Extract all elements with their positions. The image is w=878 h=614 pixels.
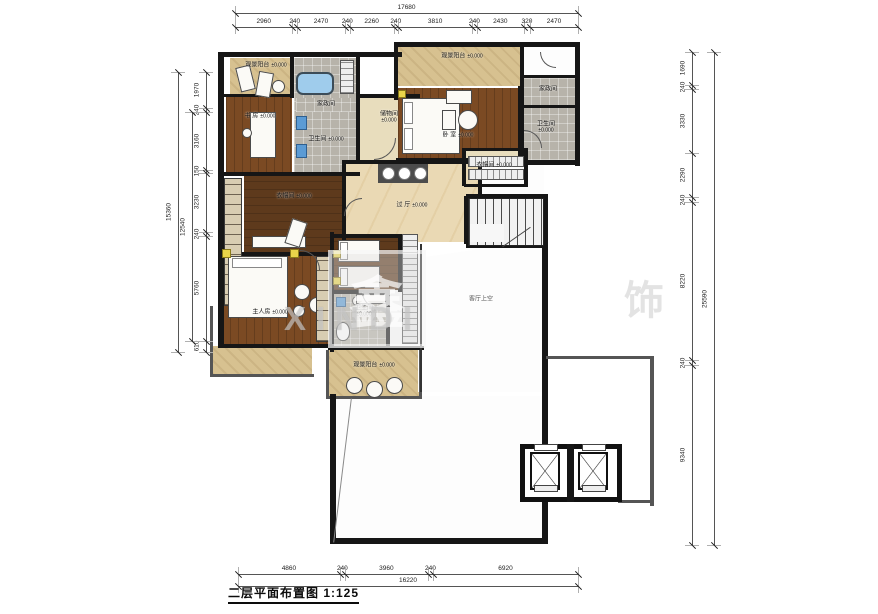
dimension-label: 16220 xyxy=(399,577,417,584)
round-furniture xyxy=(366,381,383,398)
round-furniture xyxy=(294,284,310,300)
void-living-room xyxy=(418,240,543,392)
elevator-divider-wall xyxy=(567,444,574,502)
room-label-storage: 储物间±0.000 xyxy=(380,112,398,125)
furniture-rect xyxy=(442,110,456,130)
dimension-label: 1690 xyxy=(680,61,687,75)
nightstand-icon xyxy=(222,249,231,258)
room-label-laundry-top: 家政间 xyxy=(317,102,335,109)
wall xyxy=(520,160,580,165)
room-balcony-bottom-left xyxy=(212,346,312,374)
room-name-text: 卧 室 xyxy=(443,133,457,139)
room-elevation-text: ±0.000 xyxy=(271,63,286,69)
room-name-text: 书 房 xyxy=(245,114,259,120)
wall xyxy=(546,356,654,359)
wall xyxy=(218,52,402,57)
toilet-fixture-icon xyxy=(296,116,307,130)
wall xyxy=(522,75,576,78)
room-name-text: 主人房 xyxy=(252,310,270,316)
room-name-text: 卫生间 xyxy=(308,137,326,143)
pillow xyxy=(404,128,413,150)
dimension-label: 9340 xyxy=(680,448,687,462)
dimension-label: 2430 xyxy=(493,18,507,25)
room-label-study: 书 房±0.000 xyxy=(245,114,276,121)
round-furniture xyxy=(272,80,285,93)
room-elevation-text: ±0.000 xyxy=(379,363,394,369)
room-elevation-text: ±0.000 xyxy=(260,114,275,120)
room-label-master: 主人房±0.000 xyxy=(252,310,287,317)
wall xyxy=(218,344,332,348)
round-furniture xyxy=(458,110,478,130)
dimension-label: 5760 xyxy=(194,281,201,295)
dimension-total-line xyxy=(235,13,578,14)
pillow xyxy=(232,258,282,268)
elevator-door xyxy=(582,444,606,451)
room-label-cloak-center: 衣帽间±0.000 xyxy=(276,194,311,201)
room-elevation-text: ±0.000 xyxy=(412,203,427,209)
wall xyxy=(464,184,528,187)
room-label-balcony-top-left: 观景阳台±0.000 xyxy=(245,63,286,70)
wall xyxy=(462,148,466,186)
room-elevation-text: ±0.000 xyxy=(537,129,555,135)
dimension-label: 15360 xyxy=(166,203,173,221)
wall xyxy=(330,234,406,238)
wall xyxy=(342,160,346,244)
basin-icon xyxy=(414,167,427,180)
dimension-inner-line xyxy=(192,112,193,341)
room-elevation-text: ±0.000 xyxy=(296,194,311,200)
round-furniture xyxy=(386,377,403,394)
wall xyxy=(650,356,654,506)
room-name-text: 家政间 xyxy=(539,87,557,93)
wall xyxy=(575,42,580,166)
room-elevation-text: ±0.000 xyxy=(380,119,398,125)
room-label-bath-top: 卫生间±0.000 xyxy=(308,137,343,144)
room-name-text: 过 厅 xyxy=(397,203,411,209)
dimension-label: 240 xyxy=(680,194,687,205)
wall xyxy=(394,42,580,47)
room-elevation-text: ±0.000 xyxy=(328,137,343,143)
dimension-line xyxy=(238,574,578,575)
bathtub-icon xyxy=(296,72,334,95)
dimension-total-line xyxy=(178,72,179,352)
dimension-total-line xyxy=(714,52,715,545)
dimension-label: 240 xyxy=(680,357,687,368)
wall xyxy=(330,538,548,544)
dimension-label: 4860 xyxy=(282,565,296,572)
room-elevation-text: ±0.000 xyxy=(467,54,482,60)
round-furniture xyxy=(242,128,252,138)
room-name-text: 观景阳台 xyxy=(441,54,465,60)
shelf-unit xyxy=(468,169,524,180)
shelf-unit xyxy=(340,60,354,94)
dimension-label: 150 xyxy=(194,166,201,177)
dimension-label: 2470 xyxy=(314,18,328,25)
dimension-label: 3960 xyxy=(379,565,393,572)
drawing-title: 二层平面布置图 1:125 xyxy=(228,584,359,604)
elevator-door xyxy=(534,444,558,451)
wall xyxy=(520,47,524,89)
room-label-bath-top-right: 卫生间±0.000 xyxy=(537,122,555,135)
dimension-label: 2470 xyxy=(547,18,561,25)
room-name-text: 衣帽间 xyxy=(476,163,494,169)
dimension-label: 3160 xyxy=(194,134,201,148)
stair-landing xyxy=(470,224,504,242)
toilet-fixture-icon xyxy=(296,144,307,158)
room-name-text: 衣帽间 xyxy=(276,194,294,200)
room-label-hall: 过 厅±0.000 xyxy=(397,203,428,210)
round-furniture xyxy=(346,377,363,394)
nightstand-icon xyxy=(290,249,299,258)
room-name-text: 观景阳台 xyxy=(353,363,377,369)
wall xyxy=(290,56,294,98)
wall xyxy=(356,56,360,164)
wall xyxy=(210,374,314,377)
wall xyxy=(522,105,576,108)
dimension-label: 1970 xyxy=(194,83,201,97)
dimension-label: 25590 xyxy=(702,289,709,307)
void-label: 客厅上空 xyxy=(469,297,493,304)
room-label-laundry-right: 家政间 xyxy=(539,87,557,94)
dimension-label: 240 xyxy=(194,228,201,239)
void-label-text: 客厅上空 xyxy=(469,297,493,303)
basin-icon xyxy=(382,167,395,180)
room-elevation-text: ±0.000 xyxy=(496,163,511,169)
wall xyxy=(464,148,528,151)
room-lower-room xyxy=(334,396,542,540)
room-balcony-top-right xyxy=(398,46,528,86)
room-name-text: 观景阳台 xyxy=(245,63,269,69)
room-label-bedroom-top-right: 卧 室±0.000 xyxy=(443,133,474,140)
dimension-label: 12540 xyxy=(180,217,187,235)
dimension-line xyxy=(692,52,693,545)
elevator-door xyxy=(582,485,606,492)
wall xyxy=(618,500,654,503)
vanity-counter xyxy=(378,164,428,183)
elevator-door xyxy=(534,485,558,492)
room-label-balcony-top-right: 观景阳台±0.000 xyxy=(441,54,482,61)
room-elevation-text: ±0.000 xyxy=(458,133,473,139)
room-label-balcony-bottom: 观景阳台±0.000 xyxy=(353,363,394,370)
dimension-label: 17680 xyxy=(397,4,415,11)
dimension-label: 240 xyxy=(680,81,687,92)
basin-icon xyxy=(398,167,411,180)
wall xyxy=(524,148,528,186)
watermark-text: XINDI xyxy=(284,300,422,338)
dimension-label: 3810 xyxy=(428,18,442,25)
dimension-label: 8220 xyxy=(680,274,687,288)
dimension-label: 2260 xyxy=(364,18,378,25)
floor-plan-canvas: 观景阳台±0.000书 房±0.000卫生间±0.000家政间储物间±0.000… xyxy=(0,0,878,614)
dimension-label: 3330 xyxy=(680,114,687,128)
watermark-right-char: 饰 xyxy=(624,268,664,326)
furniture-rect xyxy=(446,90,472,104)
nightstand-icon xyxy=(398,90,406,98)
dimension-label: 3230 xyxy=(194,195,201,209)
dimension-label: 2290 xyxy=(680,168,687,182)
room-label-closet-right: 衣帽间±0.000 xyxy=(476,163,511,170)
room-name-text: 家政间 xyxy=(317,102,335,108)
dimension-label: 2960 xyxy=(256,18,270,25)
pillow xyxy=(404,102,413,124)
wall xyxy=(224,172,360,176)
wall xyxy=(326,350,329,398)
dimension-label: 6920 xyxy=(498,565,512,572)
